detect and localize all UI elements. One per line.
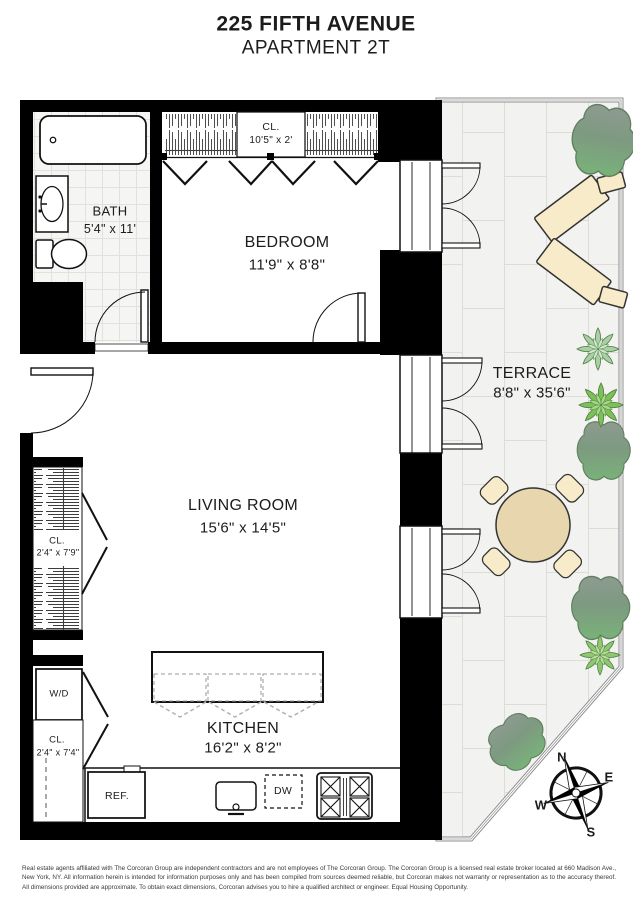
compass-east-label: E [605, 771, 614, 784]
compass-west-label: W [535, 799, 548, 812]
refrigerator-label: REF. [105, 791, 129, 802]
dining-table [496, 488, 570, 562]
hall-closet-dims: 2'4" x 7'9" [37, 549, 80, 558]
island-stools [154, 702, 318, 717]
bathtub [40, 116, 146, 164]
succulent-icon [580, 635, 620, 675]
bedroom-door [313, 293, 365, 342]
laundry-closet-label: CL. [49, 735, 65, 745]
stove [317, 773, 372, 819]
kitchen-sink [216, 782, 256, 814]
floor-plan-svg [0, 0, 633, 900]
washer-dryer-label: W/D [49, 689, 68, 699]
bush-icon [577, 422, 630, 480]
page-title: 225 FIFTH AVENUE [216, 14, 415, 35]
bath-dims: 5'4" x 11' [84, 223, 136, 236]
living-room-label: LIVING ROOM [188, 498, 298, 514]
page-subtitle: APARTMENT 2T [242, 39, 391, 58]
bath-label: BATH [93, 205, 128, 218]
terrace-label: TERRACE [493, 366, 572, 382]
disclaimer-text: Real estate agents affiliated with The C… [22, 864, 616, 892]
floor-plan-page: 225 FIFTH AVENUE APARTMENT 2T BATH 5'4" … [0, 0, 633, 900]
compass-north-label: N [557, 751, 567, 764]
kitchen-label: KITCHEN [207, 721, 279, 737]
compass-south-label: S [587, 826, 596, 839]
bedroom-dims: 11'9" x 8'8" [249, 258, 325, 273]
bush-icon [572, 576, 630, 639]
bedroom-closet-dims: 10'5" x 2' [249, 136, 292, 146]
bath-sink [36, 176, 68, 232]
succulent-icon [579, 383, 623, 427]
bedroom-closet-label: CL. [262, 122, 279, 133]
kitchen-dims: 16'2" x 8'2" [204, 741, 282, 756]
dishwasher-label: DW [274, 786, 292, 797]
hall-closet-label: CL. [49, 536, 65, 546]
kitchen-island [152, 652, 323, 717]
terrace-dims: 8'8" x 35'6" [493, 386, 571, 401]
toilet [36, 240, 87, 269]
bedroom-label: BEDROOM [245, 235, 330, 251]
compass-rose [532, 745, 621, 840]
living-room-dims: 15'6" x 14'5" [200, 521, 286, 536]
entry-door [31, 368, 93, 433]
succulent-icon [577, 328, 619, 370]
laundry-closet-dims: 2'4" x 7'4" [37, 749, 80, 758]
